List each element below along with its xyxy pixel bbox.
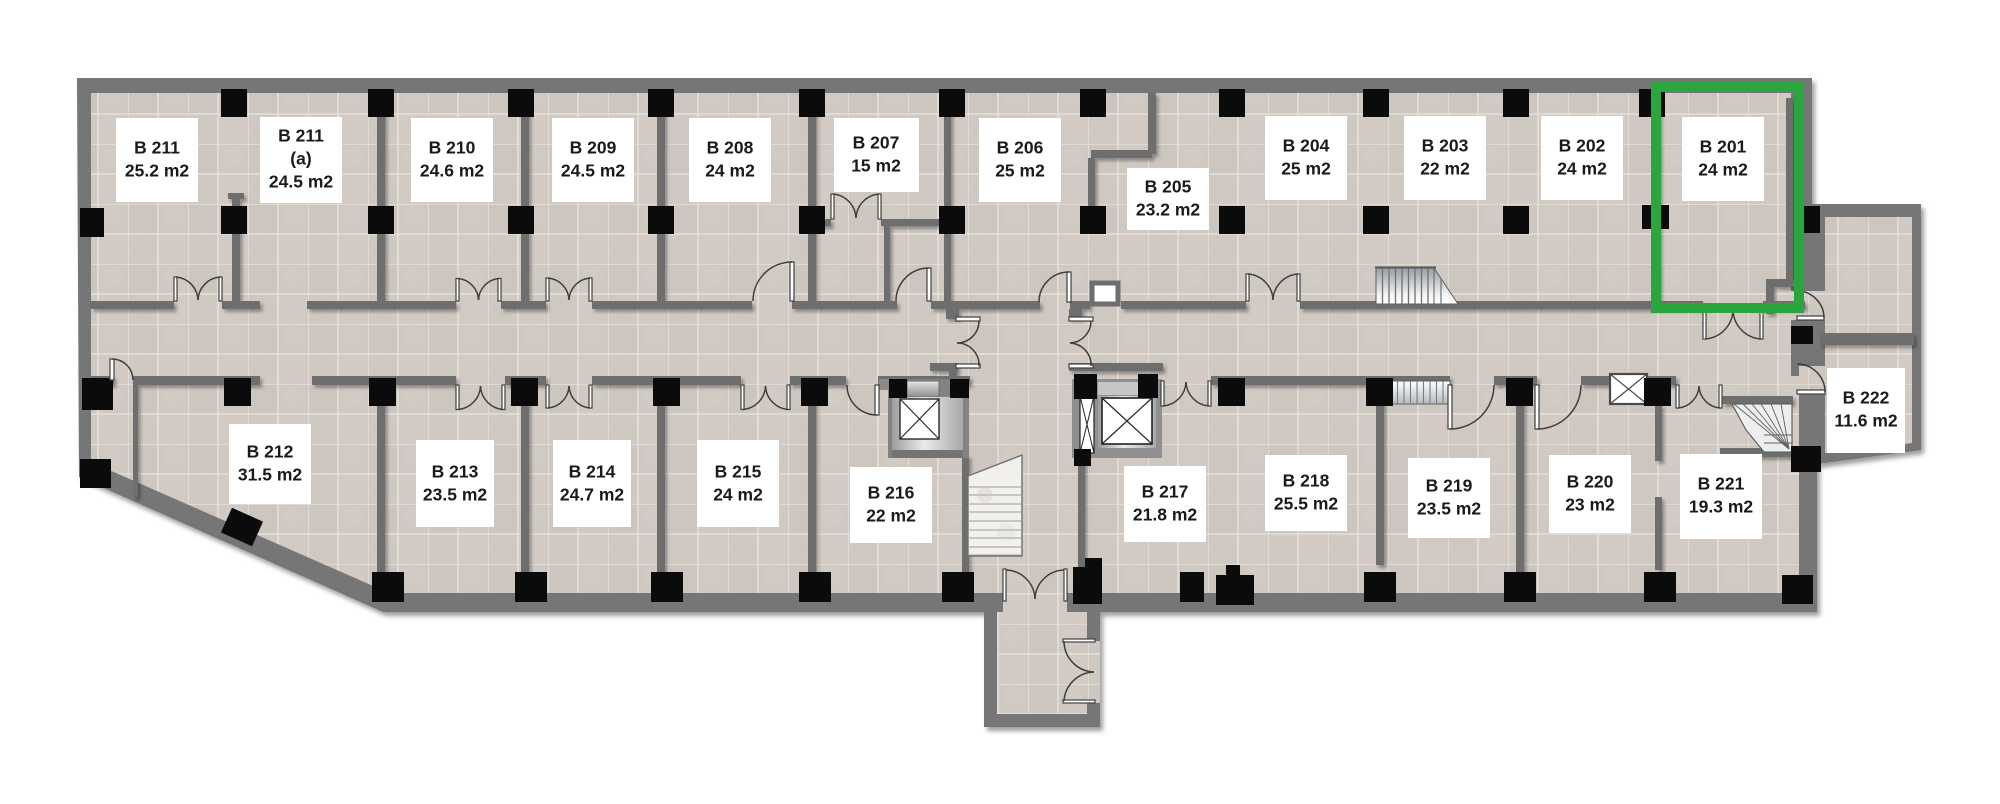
svg-text:B 222: B 222 xyxy=(1843,388,1890,408)
svg-text:B 204: B 204 xyxy=(1283,136,1330,156)
svg-text:B 211: B 211 xyxy=(134,138,180,158)
svg-text:25 m2: 25 m2 xyxy=(995,161,1045,181)
svg-text:B 208: B 208 xyxy=(707,138,754,158)
svg-text:B 205: B 205 xyxy=(1145,177,1192,197)
svg-text:21.8 m2: 21.8 m2 xyxy=(1133,505,1197,525)
svg-text:23.5 m2: 23.5 m2 xyxy=(1417,499,1481,519)
svg-text:22 m2: 22 m2 xyxy=(866,506,916,526)
svg-text:B 203: B 203 xyxy=(1422,136,1469,156)
svg-text:24 m2: 24 m2 xyxy=(1698,160,1748,180)
svg-text:B 218: B 218 xyxy=(1283,471,1330,491)
svg-text:31.5 m2: 31.5 m2 xyxy=(238,465,302,485)
svg-text:B 210: B 210 xyxy=(429,138,476,158)
svg-text:B 221: B 221 xyxy=(1698,474,1745,494)
svg-text:B 206: B 206 xyxy=(997,138,1044,158)
svg-text:B 213: B 213 xyxy=(432,462,479,482)
svg-text:24.5 m2: 24.5 m2 xyxy=(561,161,625,181)
svg-text:B 215: B 215 xyxy=(715,462,762,482)
svg-text:25 m2: 25 m2 xyxy=(1281,159,1331,179)
svg-text:B 220: B 220 xyxy=(1567,472,1614,492)
svg-text:19.3 m2: 19.3 m2 xyxy=(1689,497,1753,517)
svg-text:B 207: B 207 xyxy=(853,133,900,153)
svg-text:23 m2: 23 m2 xyxy=(1565,495,1615,515)
svg-text:25.2 m2: 25.2 m2 xyxy=(125,161,189,181)
svg-text:B 214: B 214 xyxy=(569,462,616,482)
svg-text:B 209: B 209 xyxy=(570,138,617,158)
svg-text:B 211: B 211 xyxy=(278,126,324,146)
svg-text:B 216: B 216 xyxy=(868,483,915,503)
svg-text:24.7 m2: 24.7 m2 xyxy=(560,485,624,505)
svg-text:B 217: B 217 xyxy=(1142,482,1189,502)
svg-text:22 m2: 22 m2 xyxy=(1420,159,1470,179)
svg-text:B 201: B 201 xyxy=(1700,137,1747,157)
svg-text:24 m2: 24 m2 xyxy=(705,161,755,181)
svg-text:23.5 m2: 23.5 m2 xyxy=(423,485,487,505)
svg-text:24.5 m2: 24.5 m2 xyxy=(269,172,333,192)
svg-text:24 m2: 24 m2 xyxy=(1557,159,1607,179)
svg-text:11.6 m2: 11.6 m2 xyxy=(1834,411,1898,431)
svg-text:B 212: B 212 xyxy=(247,442,294,462)
svg-text:23.2 m2: 23.2 m2 xyxy=(1136,200,1200,220)
svg-text:24 m2: 24 m2 xyxy=(713,485,763,505)
svg-text:24.6 m2: 24.6 m2 xyxy=(420,161,484,181)
svg-text:(a): (a) xyxy=(290,149,311,169)
svg-text:B 219: B 219 xyxy=(1426,476,1473,496)
svg-text:B 202: B 202 xyxy=(1559,136,1606,156)
svg-text:25.5 m2: 25.5 m2 xyxy=(1274,494,1338,514)
svg-text:15 m2: 15 m2 xyxy=(851,156,901,176)
